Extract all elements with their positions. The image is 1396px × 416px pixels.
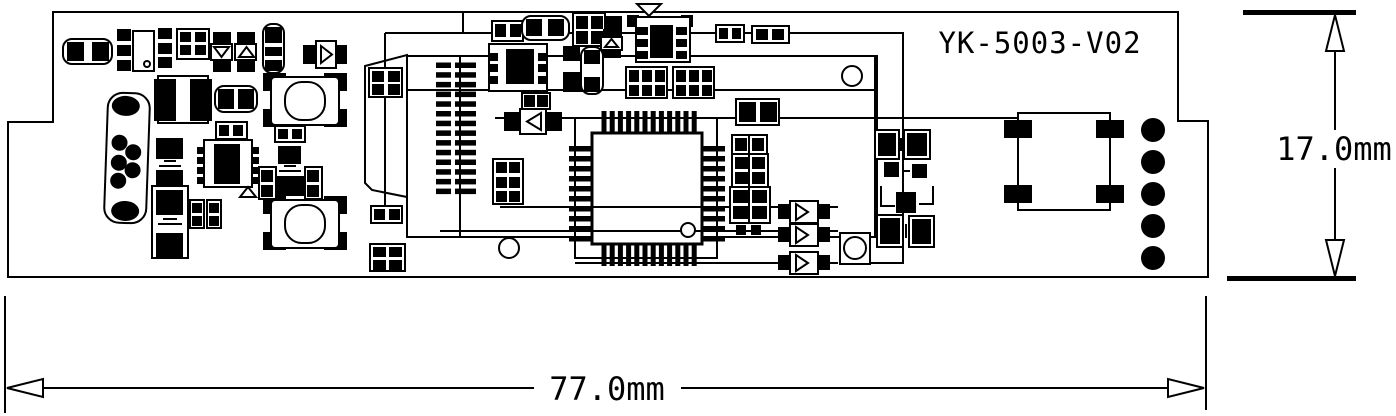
height-dimension-label: 17.0mm [1276, 130, 1392, 168]
pad-pair-top-b [716, 25, 744, 42]
pad-cluster-2x2-left [177, 29, 209, 59]
pad-pair-right-of-diode-ic [736, 99, 779, 125]
buzzer-oblong [104, 92, 151, 223]
diode-up-module [601, 29, 622, 58]
regulator-ic [117, 28, 172, 71]
capacitor-vertical-module [581, 47, 603, 94]
width-dimension-label: 77.0mm [549, 370, 665, 408]
pad-pair-above-diode [522, 93, 550, 109]
soic8-ic-module [488, 44, 548, 91]
board-title: YK-5003-V02 [938, 26, 1141, 60]
pad-pair-above-soic [216, 122, 247, 139]
diode-left-module [504, 109, 562, 134]
mounting-hole-boxed [840, 233, 870, 264]
pad-pair-module-left [371, 206, 402, 223]
pad-cluster-3x2-b [673, 67, 714, 98]
mounting-hole-top [842, 66, 862, 86]
tact-switch-1 [263, 73, 347, 127]
qfp-pin1-marker [681, 223, 695, 237]
diode-right-top-left [303, 41, 347, 68]
pad-column-right [305, 167, 322, 199]
pad-pair-right-cluster [275, 126, 305, 142]
pad-pair-top-a [492, 21, 523, 41]
connector-pad-cluster [369, 68, 402, 97]
cap-stack-2 [152, 186, 188, 258]
pad-cluster-2x3-module [493, 159, 523, 204]
pad-column-left [259, 167, 276, 199]
capacitor-top [522, 16, 569, 40]
capacitor-mid [215, 86, 257, 112]
pcb-dimension-drawing: YK-5003-V02 17.0mm 77.0mm [0, 0, 1396, 416]
mounting-hole-module [499, 238, 519, 258]
pad-cluster-3x2-a [626, 67, 667, 98]
pad-group-right-of-qfp [730, 135, 770, 235]
tact-switch-2 [263, 196, 347, 250]
pad-cluster-module-left [370, 244, 405, 271]
capacitor-horizontal [63, 39, 112, 64]
diode-down [211, 32, 232, 72]
height-dimension: 17.0mm [1227, 10, 1392, 281]
diode-up [235, 32, 256, 72]
inductor-transformer [154, 76, 212, 123]
cap-stack-3 [275, 146, 305, 196]
pad-pair-top-c [752, 26, 789, 43]
crystal-vertical [263, 24, 284, 73]
width-dimension: 77.0mm [5, 296, 1206, 413]
